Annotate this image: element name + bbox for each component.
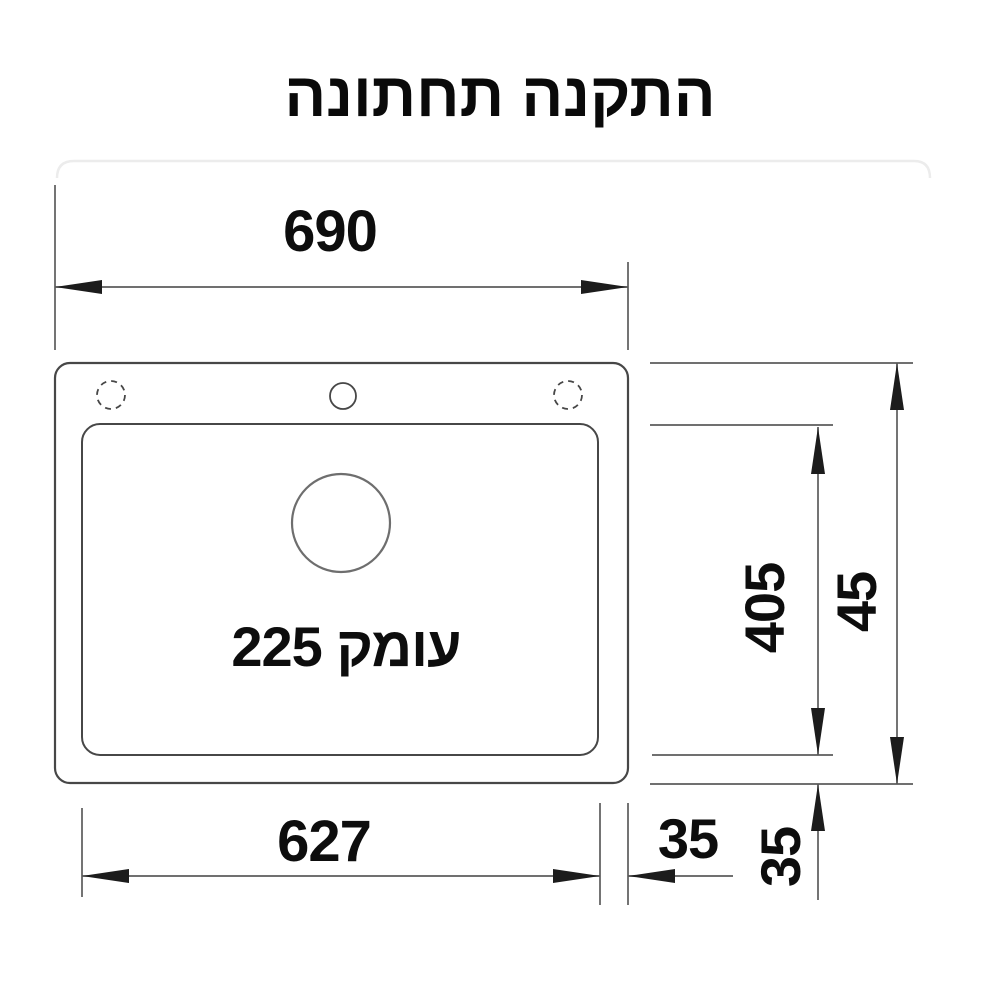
faint-divider-line bbox=[57, 161, 930, 178]
arrow-left-icon bbox=[82, 869, 129, 883]
faucet-holes bbox=[97, 381, 582, 409]
page-title: התקנה תחתונה bbox=[0, 60, 1000, 131]
dim-label-right-edge-offset: 35 bbox=[753, 827, 809, 887]
arrow-right-icon bbox=[553, 869, 600, 883]
arrow-down-icon bbox=[890, 737, 904, 784]
arrow-up-icon bbox=[811, 427, 825, 474]
arrow-right-icon bbox=[581, 280, 628, 294]
dim-label-right-outer-height: 45 bbox=[829, 572, 885, 632]
dim-label-bottom-edge-offset: 35 bbox=[658, 811, 718, 867]
arrow-down-icon bbox=[811, 708, 825, 755]
faucet-hole-right-dashed bbox=[554, 381, 582, 409]
arrow-offset-icon bbox=[628, 869, 675, 883]
installation-diagram: התקנה תחתונה 690 עומק 225 627 35 405 45 … bbox=[0, 0, 1000, 1000]
dim-label-right-inner-height: 405 bbox=[737, 563, 793, 653]
faucet-hole-left-dashed bbox=[97, 381, 125, 409]
arrow-offset-up-icon bbox=[811, 784, 825, 831]
dim-label-top-width: 690 bbox=[283, 203, 377, 261]
dimension-bottom-width bbox=[82, 803, 733, 905]
arrow-left-icon bbox=[55, 280, 102, 294]
arrow-up-icon bbox=[890, 363, 904, 410]
sink-technical-drawing bbox=[0, 0, 1000, 1000]
dim-label-bottom-inner-width: 627 bbox=[277, 813, 371, 871]
drain-circle bbox=[292, 474, 390, 572]
faucet-hole-center bbox=[330, 383, 356, 409]
depth-label: עומק 225 bbox=[231, 619, 460, 675]
